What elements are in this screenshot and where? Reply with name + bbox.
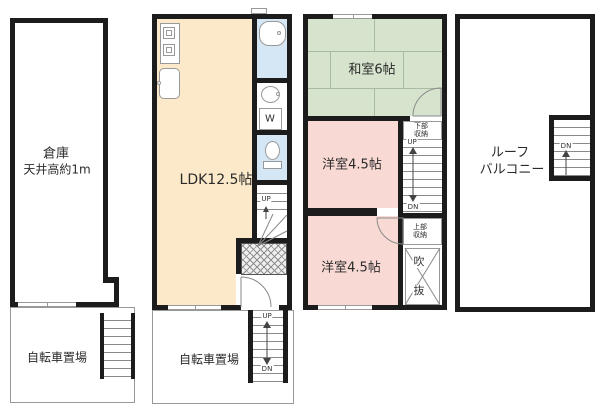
bedroom2-label: 洋室4.5帖 [321, 257, 381, 276]
plan-annotations [0, 0, 600, 417]
bicycle-middle-label: 自転車置場 [179, 351, 239, 368]
winder-step [258, 215, 287, 246]
storage-upper-label: 収納 [413, 231, 427, 239]
floorplan: 倉庫 天井高約1m 自転車置場 [0, 0, 600, 417]
warehouse-sublabel: 天井高約1m [23, 161, 90, 178]
arrowhead-up [263, 206, 269, 212]
ldk-label: LDK12.5帖 [180, 169, 253, 189]
arrowhead-up [263, 321, 271, 328]
arrowhead-up [562, 150, 570, 157]
warehouse-label: 倉庫 [43, 143, 69, 162]
stairs-up-label: UP [406, 138, 417, 146]
roof-balcony-label: バルコニー [480, 159, 545, 178]
arrowhead-up [409, 147, 417, 154]
storage-lower-label: 下部 [414, 122, 428, 130]
stairs-dn-label: DN [560, 142, 573, 150]
stairs-dn-label: DN [261, 365, 274, 373]
door-arc-bedroom2 [377, 218, 403, 244]
void-label: 抜 [413, 285, 426, 297]
entry-stairs-up-label: UP [260, 195, 271, 203]
bedroom1-label: 洋室4.5帖 [322, 154, 382, 173]
storage-upper-label: 上部 [413, 223, 427, 231]
washing-machine-label: W [265, 114, 275, 125]
void-label: 吹 [413, 256, 426, 268]
washitsu-label: 和室6帖 [348, 59, 395, 78]
stairs-up-label: UP [261, 312, 272, 320]
winder-step [258, 231, 287, 246]
arrowhead-down [409, 195, 417, 202]
arrowhead-down [263, 358, 271, 365]
storage-lower-label: 収納 [414, 130, 428, 138]
bicycle-left-label: 自転車置場 [27, 349, 87, 366]
door-arc-entrance [241, 277, 271, 307]
stairs-dn-label: DN [407, 203, 420, 211]
door-arc-washitsu [413, 88, 441, 116]
